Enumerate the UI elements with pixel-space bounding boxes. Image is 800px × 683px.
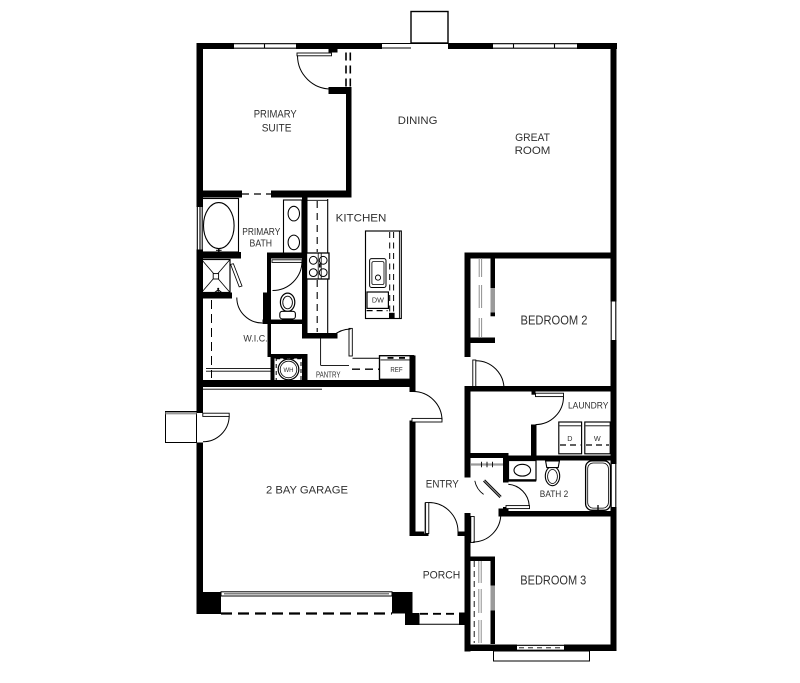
svg-text:BEDROOM 3: BEDROOM 3 bbox=[520, 574, 586, 588]
svg-text:ENTRY: ENTRY bbox=[426, 479, 459, 491]
svg-text:LAUNDRY: LAUNDRY bbox=[568, 400, 609, 411]
svg-text:PRIMARY: PRIMARY bbox=[242, 227, 280, 238]
svg-text:DW: DW bbox=[372, 296, 384, 305]
svg-text:BATH 2: BATH 2 bbox=[540, 489, 568, 500]
svg-text:DINING: DINING bbox=[398, 115, 438, 127]
svg-text:D: D bbox=[567, 434, 572, 443]
svg-text:WH: WH bbox=[284, 367, 294, 374]
svg-text:ROOM: ROOM bbox=[515, 145, 551, 157]
svg-text:BATH: BATH bbox=[250, 238, 273, 249]
svg-text:PORCH: PORCH bbox=[423, 570, 461, 582]
svg-text:KITCHEN: KITCHEN bbox=[336, 212, 387, 224]
svg-text:REF: REF bbox=[390, 365, 403, 374]
svg-text:SUITE: SUITE bbox=[262, 122, 292, 134]
svg-text:PANTRY: PANTRY bbox=[316, 370, 341, 379]
svg-text:2 BAY GARAGE: 2 BAY GARAGE bbox=[266, 485, 348, 497]
svg-text:PRIMARY: PRIMARY bbox=[254, 109, 297, 121]
svg-text:W: W bbox=[594, 434, 601, 443]
svg-text:W.I.C.: W.I.C. bbox=[243, 332, 267, 343]
svg-text:GREAT: GREAT bbox=[515, 132, 550, 144]
svg-text:BEDROOM 2: BEDROOM 2 bbox=[521, 314, 588, 328]
